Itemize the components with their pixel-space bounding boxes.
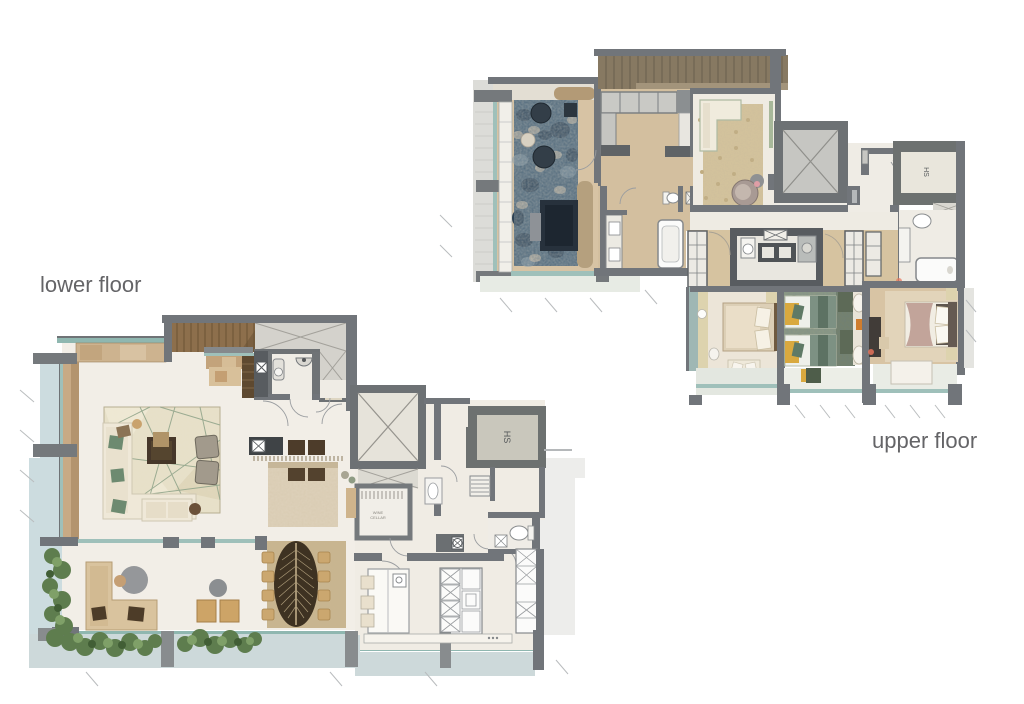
svg-text:CELLAR: CELLAR bbox=[370, 515, 386, 520]
svg-text:lower floor: lower floor bbox=[40, 272, 141, 297]
svg-text:HS: HS bbox=[502, 431, 512, 444]
svg-text:upper floor: upper floor bbox=[872, 428, 977, 453]
svg-text:HS: HS bbox=[922, 167, 929, 177]
